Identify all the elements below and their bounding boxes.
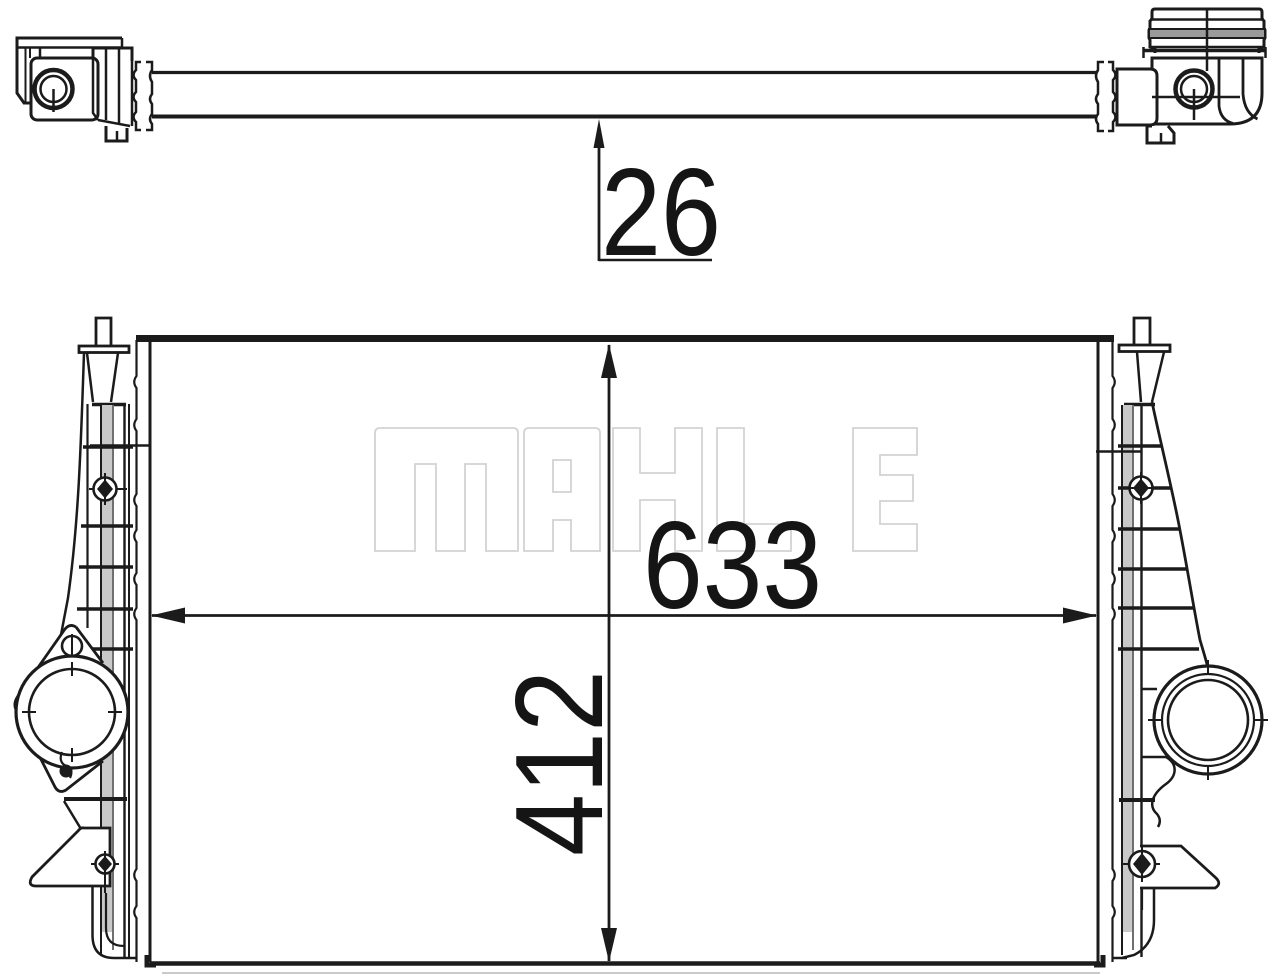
svg-text:633: 633: [643, 497, 822, 635]
svg-text:412: 412: [491, 670, 629, 856]
svg-text:26: 26: [601, 144, 721, 282]
